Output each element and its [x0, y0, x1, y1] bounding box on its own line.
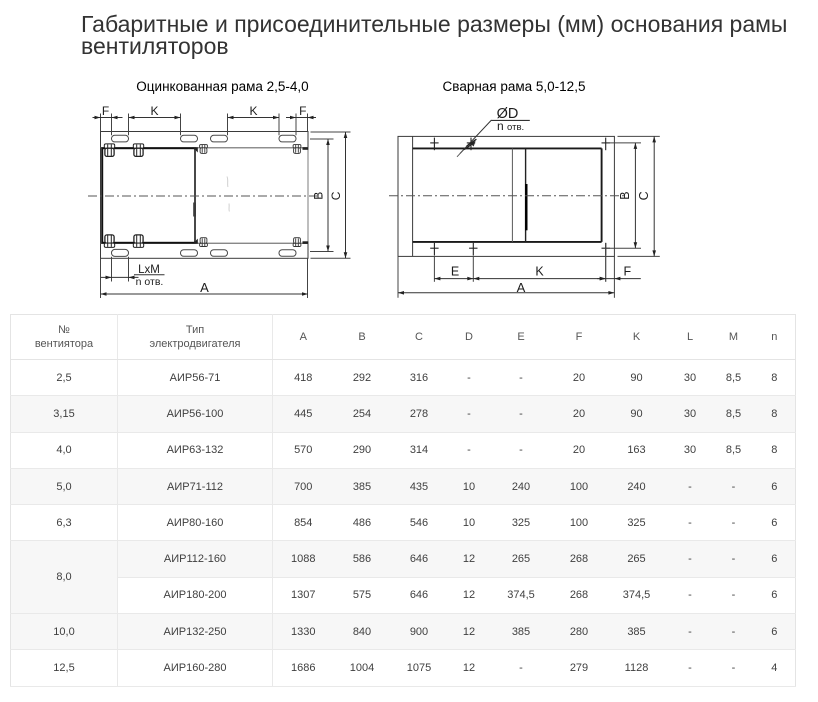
svg-text:A: A: [200, 280, 209, 295]
svg-text:A: A: [517, 280, 526, 295]
svg-text:K: K: [535, 265, 544, 279]
svg-text:n отв.: n отв.: [497, 119, 524, 133]
svg-text:E: E: [451, 265, 459, 279]
svg-text:K: K: [249, 105, 257, 118]
svg-text:F: F: [102, 105, 109, 118]
svg-text:C: C: [637, 191, 651, 200]
svg-text:F: F: [299, 105, 306, 118]
svg-text:F: F: [623, 265, 631, 279]
svg-text:B: B: [312, 192, 326, 200]
svg-text:K: K: [150, 105, 158, 118]
svg-text:C: C: [329, 191, 343, 200]
svg-text:n отв.: n отв.: [136, 276, 164, 288]
svg-text:B: B: [618, 191, 632, 199]
